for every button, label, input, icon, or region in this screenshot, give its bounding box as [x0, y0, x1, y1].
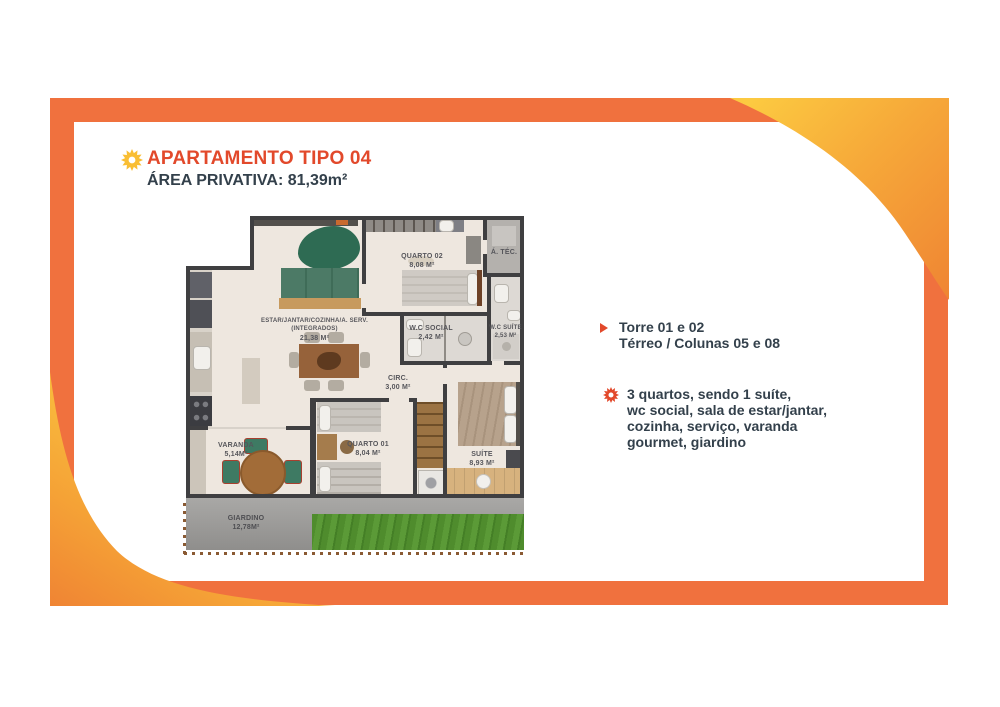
wall — [250, 216, 254, 270]
room-area: 2,42 M² — [418, 334, 443, 341]
atec-equipment — [492, 226, 516, 246]
wall — [186, 426, 208, 430]
floor-plan: ESTAR/JANTAR/COZINHA/A. SERV. (INTEGRADO… — [186, 212, 526, 560]
room-name: QUARTO 01 — [347, 441, 389, 448]
room-name: ESTAR/JANTAR/COZINHA/A. SERV. — [242, 318, 387, 326]
sun-bullet-icon — [603, 387, 619, 403]
private-area: ÁREA PRIVATIVA: 81,39m² — [147, 172, 347, 190]
wall — [413, 398, 417, 498]
wall — [520, 216, 524, 498]
room-label-giardino: GIARDINO 12,78M² — [210, 514, 282, 532]
location-line2: Térreo / Colunas 05 e 08 — [619, 335, 780, 351]
giardino-dots-bottom — [184, 552, 526, 555]
wall — [504, 361, 524, 365]
kitchen-sink — [193, 346, 211, 370]
room-area: 12,78M² — [232, 524, 259, 531]
wall — [186, 266, 190, 498]
room-label-circ: CIRC. 3,00 M² — [375, 374, 421, 392]
location-info: Torre 01 e 02 Térreo / Colunas 05 e 08 — [619, 319, 780, 351]
room-name: W.C SOCIAL — [409, 325, 453, 332]
room-label-suite: SUÍTE 8,93 M² — [456, 450, 508, 468]
quarto02-desk — [466, 236, 481, 264]
room-name: SUÍTE — [471, 451, 493, 458]
room-label-varanda: VARANDA 5,14M² — [204, 441, 268, 459]
private-area-value: 81,39m² — [288, 172, 348, 189]
wc-suite-drain — [502, 342, 511, 351]
sliding-glass-door — [208, 427, 286, 429]
giardino-dots-left — [183, 498, 186, 554]
sofa — [281, 268, 359, 298]
room-label-wc-suite: W.C SUÍTE 2,53 M² — [487, 325, 524, 341]
dining-chair — [289, 352, 299, 368]
room-area: 3,00 M² — [385, 384, 410, 391]
varanda-counter — [190, 430, 206, 494]
room-name: GIARDINO — [228, 515, 265, 522]
swoosh-top-right — [730, 98, 949, 300]
features-line: 3 quartos, sendo 1 suíte, — [627, 386, 827, 402]
room-name: CIRC. — [388, 375, 408, 382]
room-area: 8,04 M² — [355, 450, 380, 457]
room-label-estar: ESTAR/JANTAR/COZINHA/A. SERV. (INTEGRADO… — [242, 318, 387, 343]
room-area: 2,53 M² — [495, 333, 517, 339]
room-label-quarto01: QUARTO 01 8,04 M² — [336, 440, 400, 458]
room-label-quarto02: QUARTO 02 8,08 M² — [392, 252, 452, 270]
room-label-atec: Á. TÉC. — [485, 248, 523, 257]
suite-pouf — [476, 474, 491, 489]
triangle-bullet-icon — [600, 323, 608, 333]
quarto02-basin — [439, 220, 454, 232]
giardino-grass — [312, 514, 524, 550]
dining-chair — [304, 380, 320, 391]
kitchen-cabinet — [190, 300, 212, 328]
wall — [313, 398, 389, 402]
room-sub: (INTEGRADOS) — [242, 326, 387, 334]
wall — [286, 426, 313, 430]
kitchen-island — [242, 358, 260, 404]
quarto02-headboard — [477, 270, 482, 306]
fridge — [190, 272, 212, 298]
varanda-chair — [222, 460, 240, 484]
page-title: APARTAMENTO TIPO 04 — [147, 148, 371, 170]
sun-icon — [121, 149, 143, 171]
dining-chair — [360, 352, 370, 368]
dining-chair — [328, 380, 344, 391]
room-name: W.C SUÍTE — [489, 325, 521, 331]
room-name: Á. TÉC. — [491, 249, 517, 256]
features-line: cozinha, serviço, varanda — [627, 418, 827, 434]
wall — [443, 361, 447, 368]
wall — [186, 494, 524, 498]
brochure-slide: APARTAMENTO TIPO 04 ÁREA PRIVATIVA: 81,3… — [0, 0, 1000, 707]
wc-suite-toilet — [494, 284, 509, 303]
private-area-label: ÁREA PRIVATIVA: — [147, 172, 283, 189]
quarto01-pillow1 — [319, 405, 331, 431]
washer — [418, 470, 444, 496]
wall — [487, 273, 491, 365]
room-area: 8,08 M² — [409, 262, 434, 269]
room-label-wc-social: W.C SOCIAL 2,42 M² — [400, 324, 462, 342]
sofa-base — [279, 298, 361, 309]
wall — [362, 312, 491, 316]
quarto01-pillow2 — [319, 466, 331, 492]
wall — [310, 398, 316, 498]
wc-suite-sink — [507, 310, 521, 321]
varanda-chair — [284, 460, 302, 484]
closet-shelves — [417, 402, 443, 468]
wall — [186, 266, 254, 270]
features-info: 3 quartos, sendo 1 suíte, wc social, sal… — [627, 386, 827, 450]
room-area: 5,14M² — [225, 451, 248, 458]
quarto01-dresser — [317, 434, 337, 460]
room-area: 8,93 M² — [469, 460, 494, 467]
room-name: VARANDA — [218, 442, 254, 449]
cooktop — [190, 396, 212, 426]
room-area: 21,38 M² — [300, 335, 329, 342]
features-line: gourmet, giardino — [627, 434, 827, 450]
wall — [443, 384, 447, 498]
room-name: QUARTO 02 — [401, 253, 443, 260]
wall — [362, 216, 366, 284]
features-line: wc social, sala de estar/jantar, — [627, 402, 827, 418]
location-line1: Torre 01 e 02 — [619, 319, 780, 335]
wall — [483, 216, 487, 240]
